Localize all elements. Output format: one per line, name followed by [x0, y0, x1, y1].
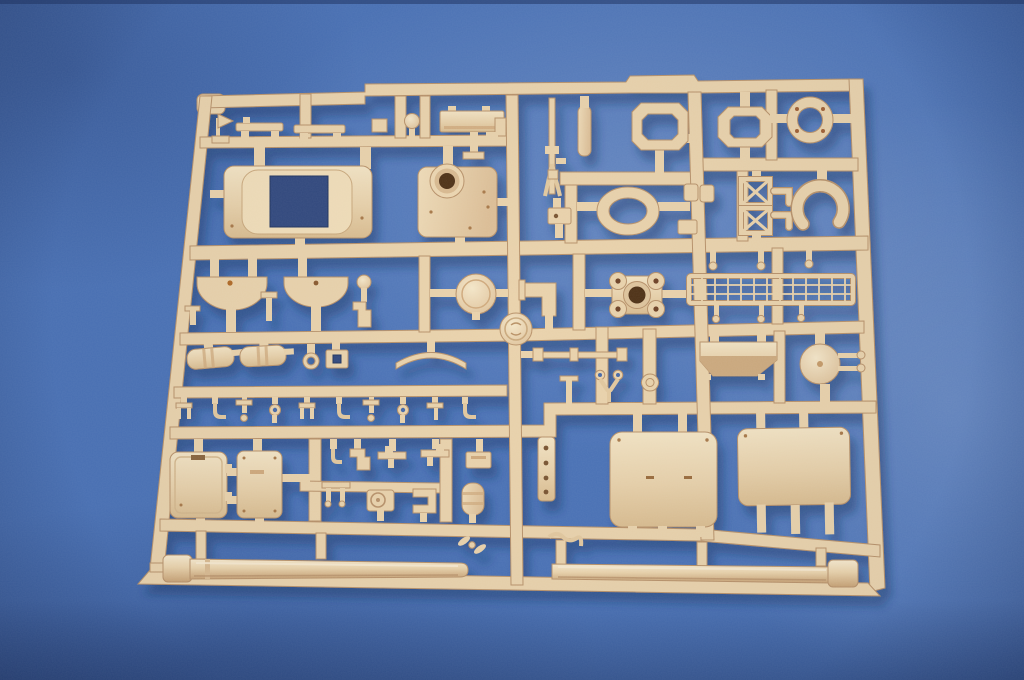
paper-grain: [0, 0, 1024, 680]
sprue-photo: Injection-molded model kit sprue of tan …: [0, 0, 1024, 680]
top-edge-shade: [0, 0, 1024, 4]
